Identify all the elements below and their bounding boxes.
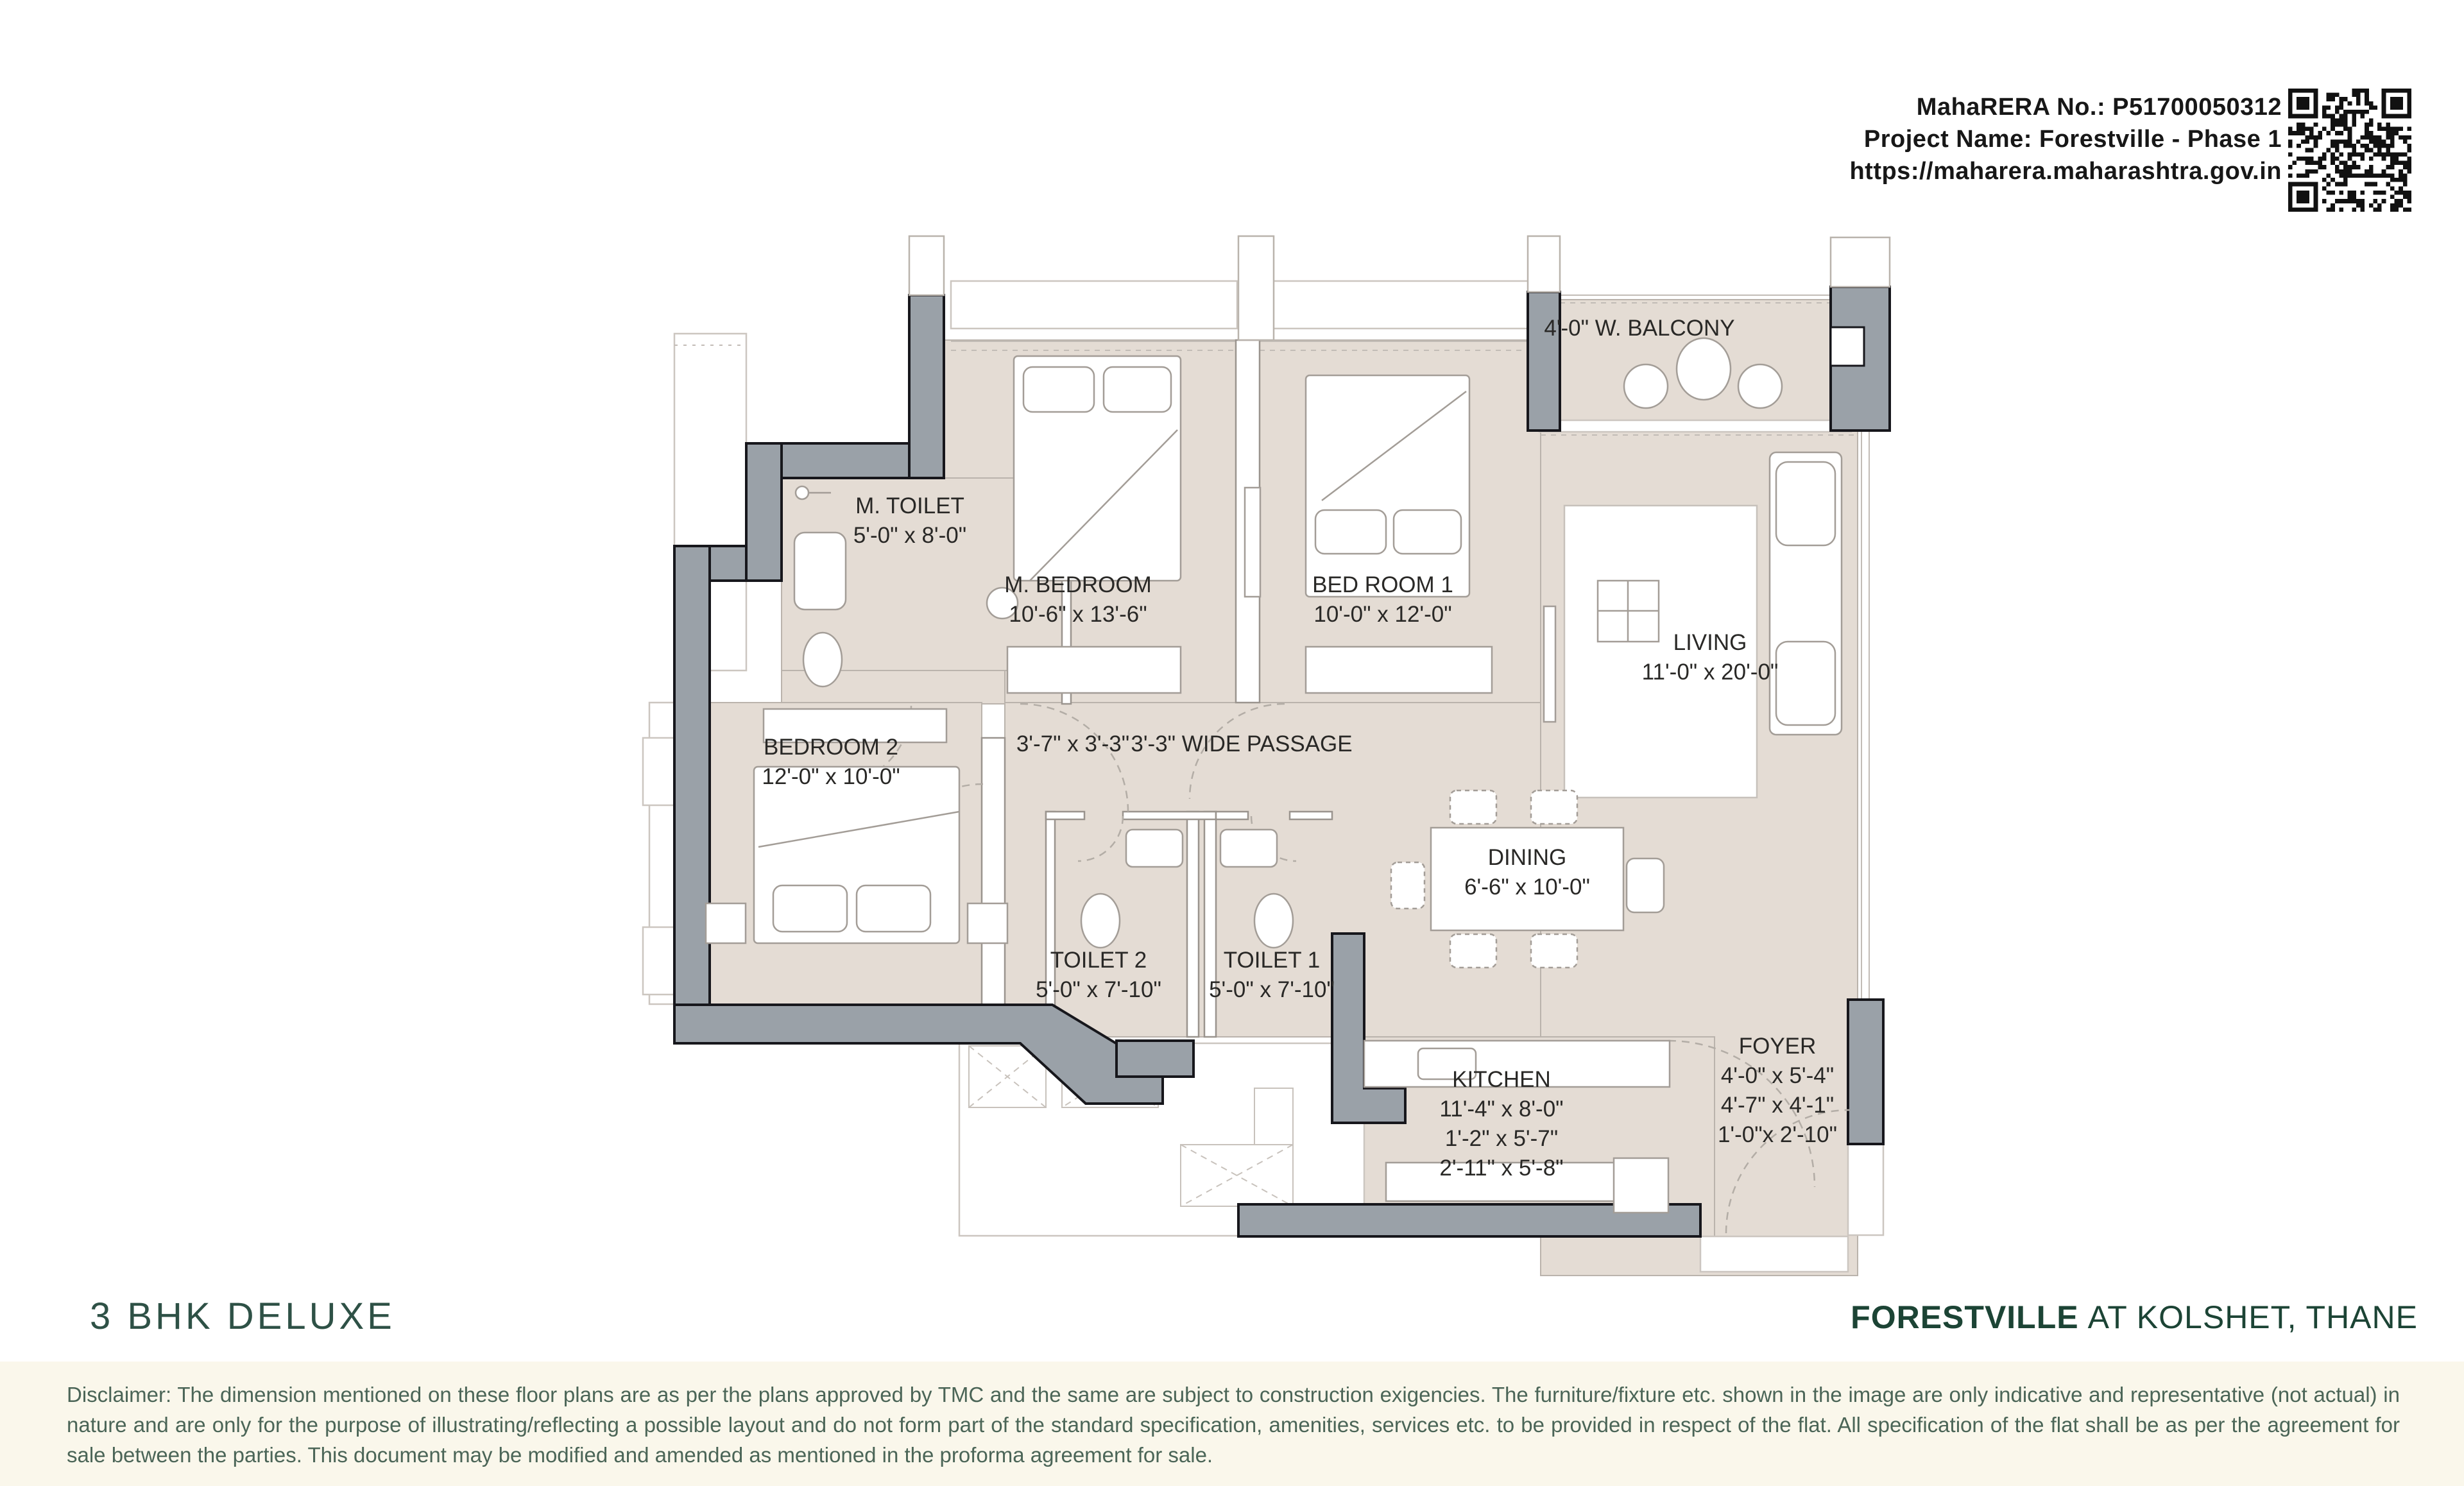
wall — [1116, 1041, 1193, 1077]
wall — [1848, 1000, 1883, 1144]
column — [1848, 1141, 1883, 1235]
passage-label: 3'-3" WIDE PASSAGE — [1131, 730, 1352, 759]
room-label-kitchen: KITCHEN 11'-4" x 8'-0" 1'-2" x 5'-7" 2'-… — [1439, 1065, 1563, 1183]
balcony-sill — [1539, 420, 1851, 432]
washbasin-icon — [1126, 830, 1183, 867]
wc-icon — [1081, 894, 1120, 948]
top-ledge — [1258, 281, 1530, 329]
floor-plan: 4'-0" W. BALCONY M. TOILET 5'-0" x 8'-0"… — [610, 231, 1893, 1296]
room-label-m-toilet: M. TOILET 5'-0" x 8'-0" — [853, 491, 966, 551]
room-label-m-bedroom: M. BEDROOM 10'-6" x 13'-6" — [1004, 570, 1151, 629]
wall — [746, 443, 782, 581]
room-label-living: LIVING 11'-0" x 20'-0" — [1642, 628, 1779, 687]
washbasin-icon — [794, 533, 846, 610]
top-ledge — [951, 281, 1237, 329]
room-label-toilet1: TOILET 1 5'-0" x 7'-10" — [1209, 946, 1335, 1005]
wardrobe-icon — [1007, 647, 1181, 693]
partition-toilet-divider — [1187, 812, 1199, 1037]
chair-icon — [1624, 364, 1668, 408]
dresser-icon — [1245, 488, 1260, 597]
plan-type-title: 3 BHK DELUXE — [90, 1295, 395, 1338]
wardrobe-icon — [1306, 647, 1492, 693]
window-box — [643, 738, 675, 805]
rera-project-name: Project Name: Forestville - Phase 1 — [1849, 123, 2282, 155]
partition-bedroom2 — [982, 738, 1005, 1005]
room-label-dining: DINING 6'-6" x 10'-0" — [1464, 843, 1590, 902]
wc-icon — [803, 633, 842, 687]
chair-icon — [1738, 364, 1782, 408]
lobby-dimension-label: 3'-7" x 3'-3" — [1016, 730, 1129, 759]
tv-unit-icon — [1544, 606, 1555, 722]
washbasin-icon — [1220, 830, 1277, 867]
rera-number: MahaRERA No.: P51700050312 — [1849, 91, 2282, 123]
project-location: AT KOLSHET, THANE — [2088, 1299, 2418, 1335]
wall — [674, 546, 710, 1005]
shower-icon — [796, 486, 809, 499]
wall — [1528, 292, 1560, 431]
room-label-balcony: 4'-0" W. BALCONY — [1544, 314, 1734, 343]
room-label-bedroom2: BEDROOM 2 12'-0" x 10'-0" — [762, 733, 900, 792]
sofa-icon — [1770, 452, 1842, 735]
fridge-icon — [1614, 1158, 1668, 1213]
qr-code — [2288, 89, 2411, 212]
project-name: FORESTVILLE — [1851, 1299, 2078, 1335]
wall — [909, 295, 944, 478]
room-label-bedroom1: BED ROOM 1 10'-0" x 12'-0" — [1312, 570, 1453, 629]
entry-landing — [1700, 1236, 1848, 1272]
rera-info-block: MahaRERA No.: P51700050312 Project Name:… — [1849, 91, 2282, 187]
room-label-toilet2: TOILET 2 5'-0" x 7'-10" — [1036, 946, 1161, 1005]
duct — [1831, 327, 1864, 366]
rera-website: https://maharera.maharashtra.gov.in — [1849, 155, 2282, 187]
wall-columns — [1831, 327, 1864, 366]
project-title: FORESTVILLEAT KOLSHET, THANE — [1851, 1299, 2418, 1336]
disclaimer-text: Disclaimer: The dimension mentioned on t… — [67, 1379, 2400, 1470]
window-box — [643, 927, 675, 995]
wc-icon — [1254, 894, 1293, 948]
round-table-icon — [1677, 338, 1731, 400]
room-label-foyer: FOYER 4'-0" x 5'-4" 4'-7" x 4'-1" 1'-0"x… — [1718, 1032, 1837, 1150]
chair-icon — [1627, 858, 1664, 912]
